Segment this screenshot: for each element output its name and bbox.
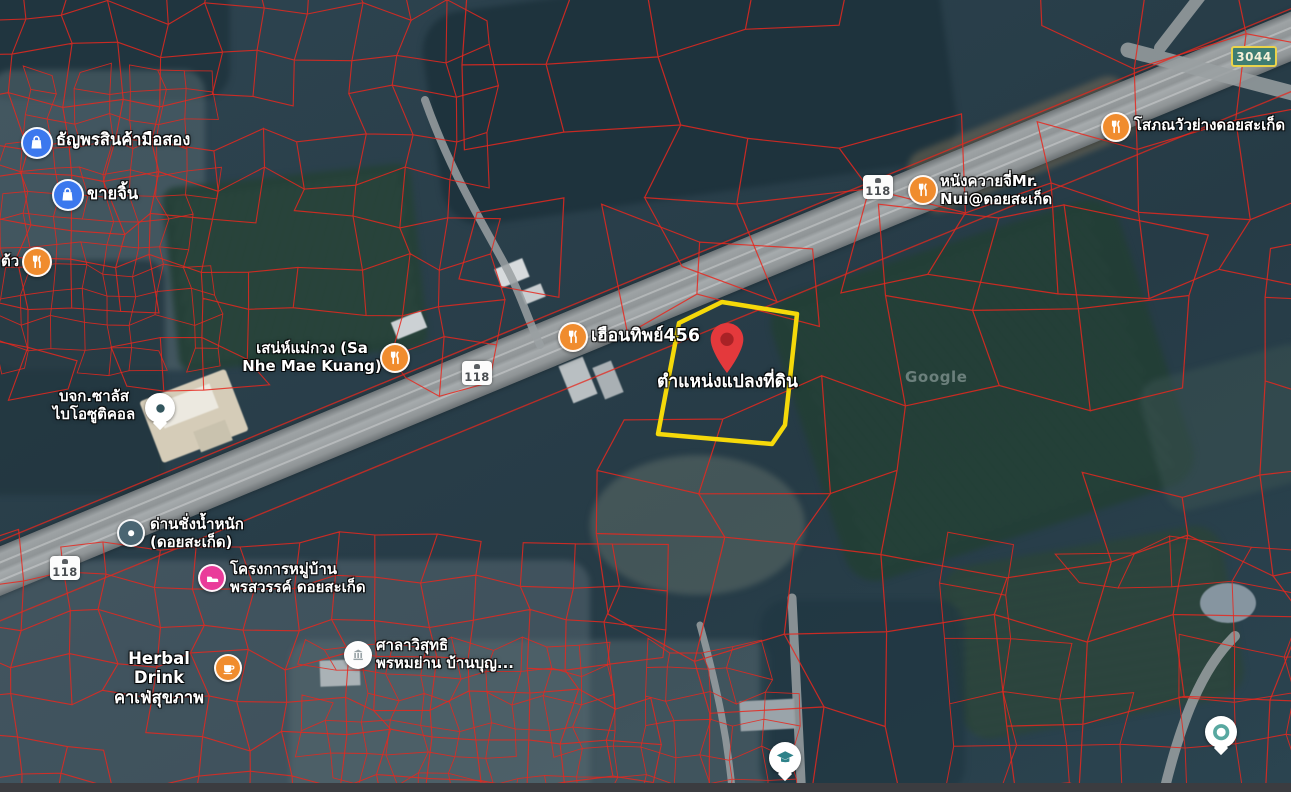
cafe-icon[interactable] (214, 654, 242, 682)
poi-label[interactable]: โสภณวัวย่างดอยสะเก็ด (1134, 117, 1285, 135)
bottom-bar (0, 783, 1291, 792)
poi-label[interactable]: หนังควายจี่Mr.Nui@ดอยสะเก็ด (940, 173, 1052, 208)
shopping-bag-icon[interactable] (52, 179, 84, 211)
poi-label[interactable]: ด่านชั่งน้ำหนัก(ดอยสะเก็ด) (150, 516, 244, 551)
landmark-icon[interactable] (344, 641, 372, 669)
restaurant-icon[interactable] (558, 322, 588, 352)
weigh-station-icon[interactable] (117, 519, 145, 547)
shopping-bag-icon[interactable] (21, 127, 53, 159)
poi-label[interactable]: Herbal Drinkคาเฟ่สุขภาพ (103, 649, 215, 707)
poi-label[interactable]: เสน่ห์แม่กวง (SaNhe Mae Kuang) (238, 340, 386, 375)
restaurant-icon[interactable] (22, 247, 52, 277)
satellite-map[interactable]: ตำแหน่งแปลงที่ดิน Google ธัญพรสินค้ามือส… (0, 0, 1291, 792)
poi-label[interactable]: ศาลาวิสุทธิพรหมย่าน บ้านบุญ... (376, 637, 514, 672)
route-shield-3044: 3044 (1231, 46, 1277, 67)
route-shield-118: 118 (462, 361, 492, 385)
route-shield-118: 118 (863, 175, 893, 199)
school-pin-icon[interactable] (769, 742, 801, 774)
place-pin-icon[interactable] (145, 393, 175, 423)
location-pin[interactable] (707, 320, 747, 376)
google-watermark: Google (905, 368, 968, 386)
generic-pin-icon[interactable] (1205, 716, 1237, 748)
restaurant-icon[interactable] (908, 175, 938, 205)
poi-label[interactable]: ต้ว (1, 253, 19, 271)
poi-label[interactable]: ธัญพรสินค้ามือสอง (56, 130, 190, 149)
plot-label: ตำแหน่งแปลงที่ดิน (640, 372, 815, 393)
route-shield-118: 118 (50, 556, 80, 580)
restaurant-icon[interactable] (1101, 112, 1131, 142)
restaurant-icon[interactable] (380, 343, 410, 373)
poi-label[interactable]: โครงการหมู่บ้านพรสวรรค์ ดอยสะเก็ด (230, 561, 366, 596)
lodging-icon[interactable] (198, 564, 226, 592)
poi-label[interactable]: บจก.ซาลัสไบโอซูติคอล (38, 388, 150, 423)
poi-label[interactable]: เฮือนทิพย์456 (591, 326, 700, 347)
poi-label[interactable]: ขายจิ้น (87, 184, 138, 203)
